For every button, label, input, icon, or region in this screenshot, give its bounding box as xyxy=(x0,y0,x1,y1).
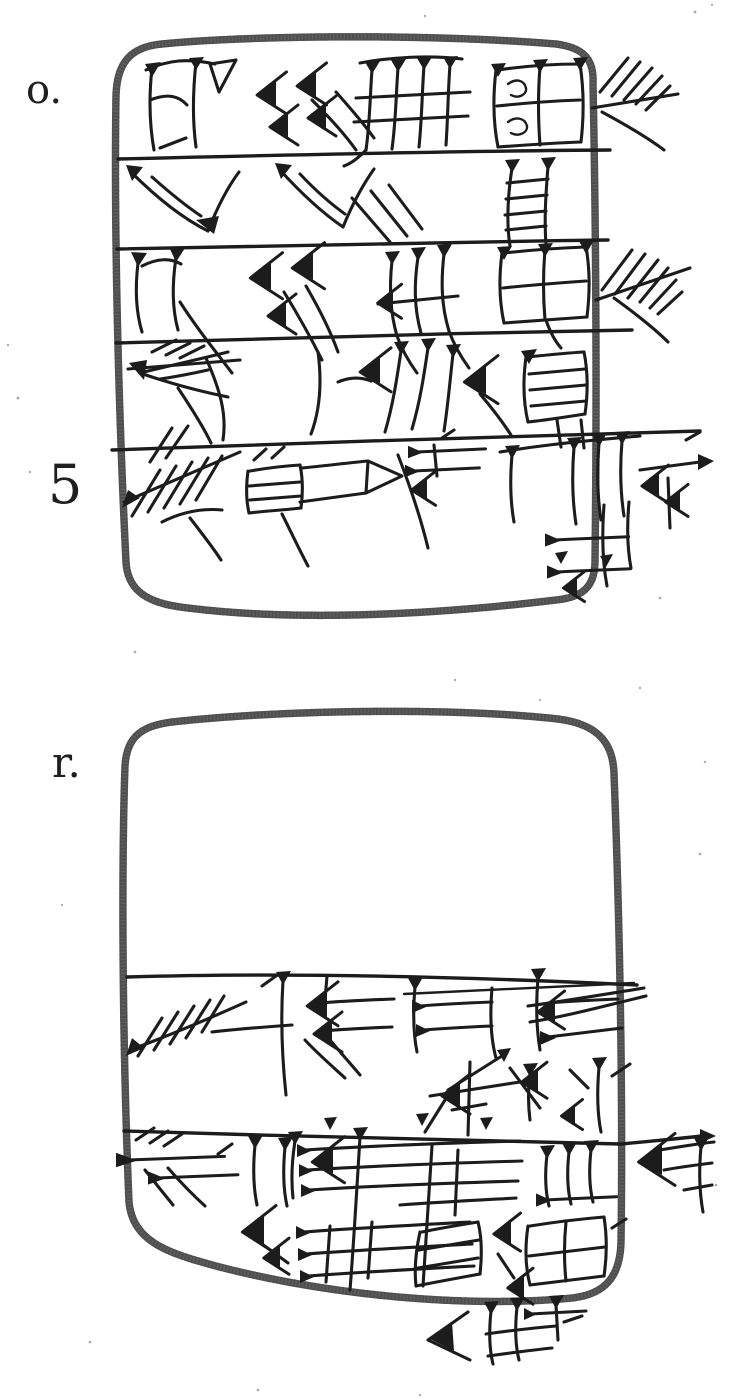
cuneiform-sign-cluster xyxy=(596,250,690,342)
obverse-label: o. xyxy=(26,67,62,113)
cuneiform-sign-cluster xyxy=(592,58,678,150)
cuneiform-sign-cluster xyxy=(428,1295,586,1364)
reverse-label: r. xyxy=(52,738,81,787)
tablet-outline xyxy=(115,37,596,615)
obverse-tablet-drawing xyxy=(112,37,714,615)
cuneiform-sign-cluster xyxy=(640,432,714,528)
cuneiform-sign-cluster xyxy=(639,1133,714,1212)
scanned-page: o. 5 r. xyxy=(0,0,733,1399)
reverse-tablet-drawing xyxy=(116,711,716,1364)
cuneiform-tablet-figure: o. 5 r. xyxy=(0,0,733,1399)
line-number-label: 5 xyxy=(48,453,82,516)
